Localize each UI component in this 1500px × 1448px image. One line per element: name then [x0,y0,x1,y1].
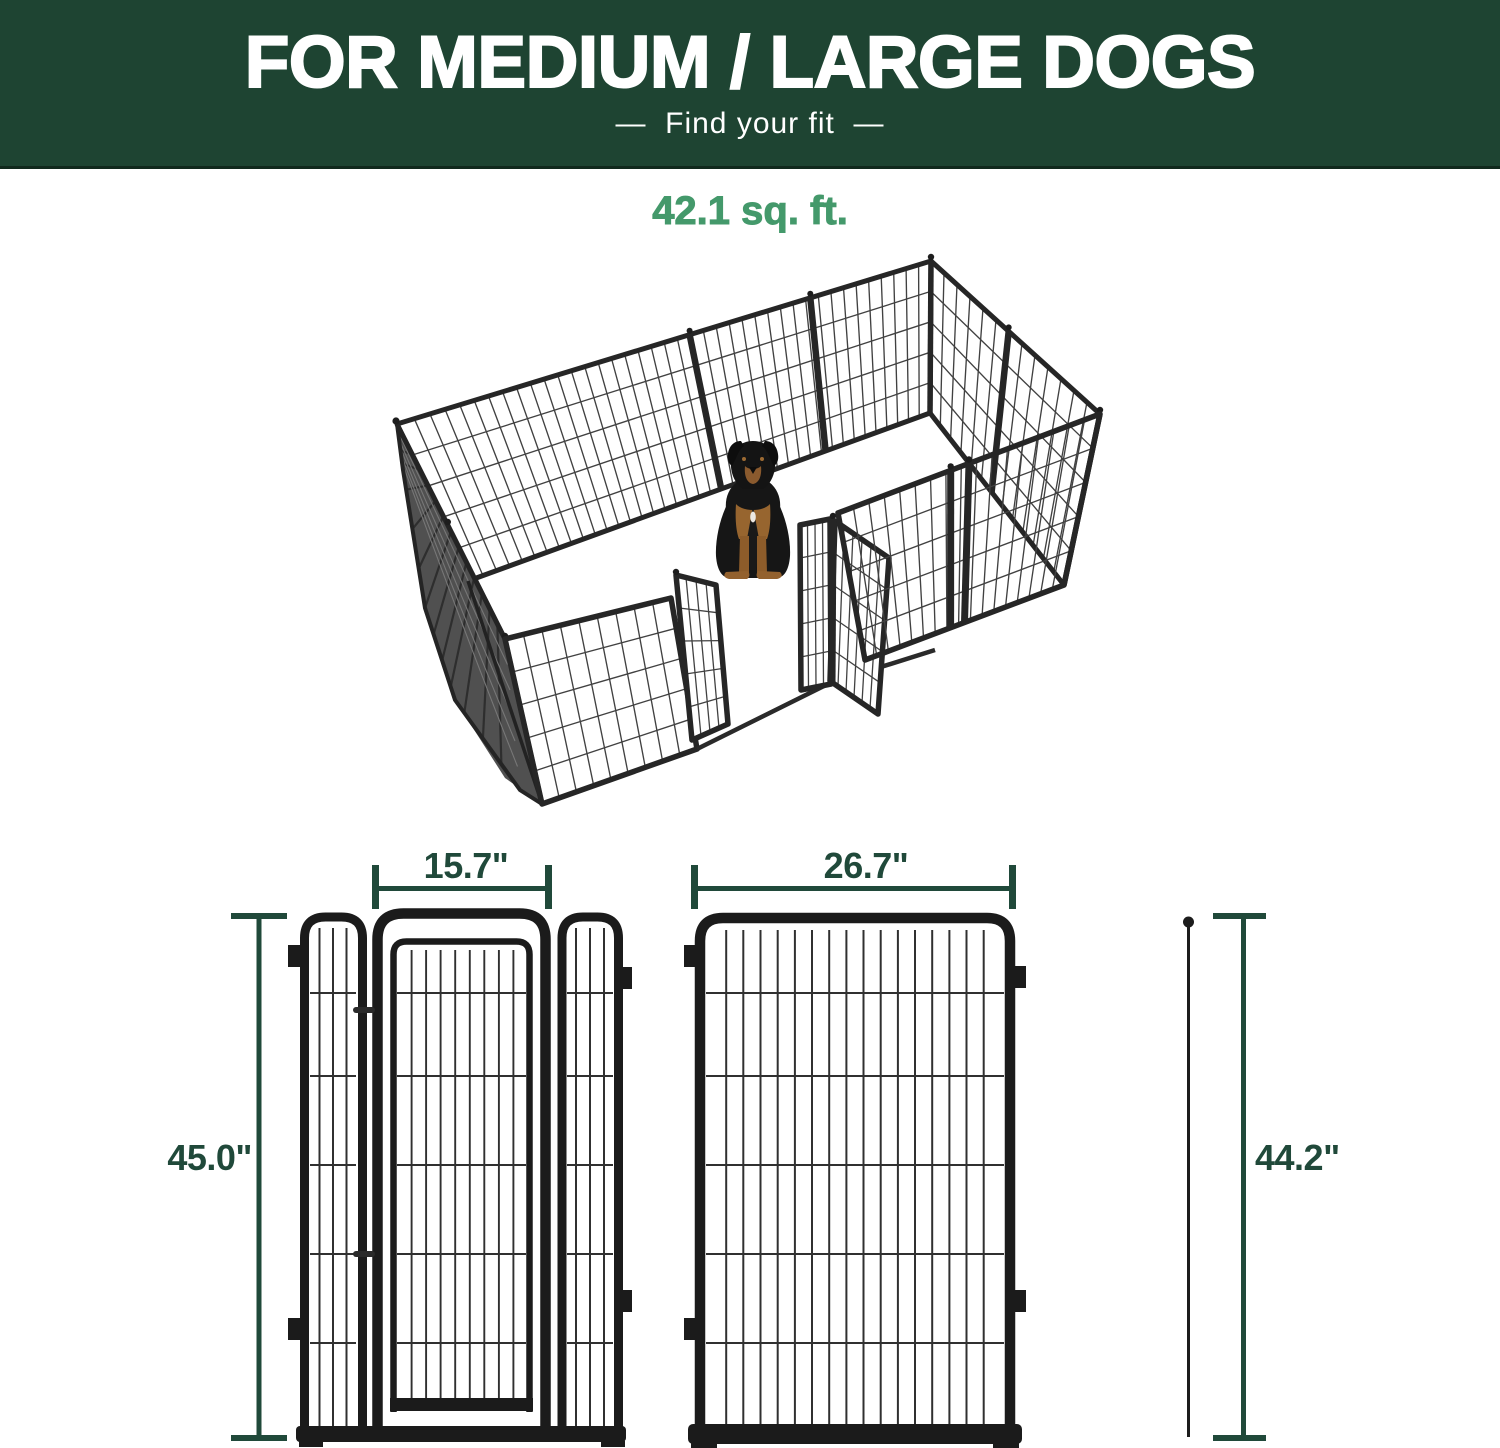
svg-text:44.2": 44.2" [1255,1137,1340,1178]
svg-text:15.7": 15.7" [424,845,509,886]
svg-text:26.7": 26.7" [824,845,909,886]
svg-text:45.0": 45.0" [167,1137,252,1178]
